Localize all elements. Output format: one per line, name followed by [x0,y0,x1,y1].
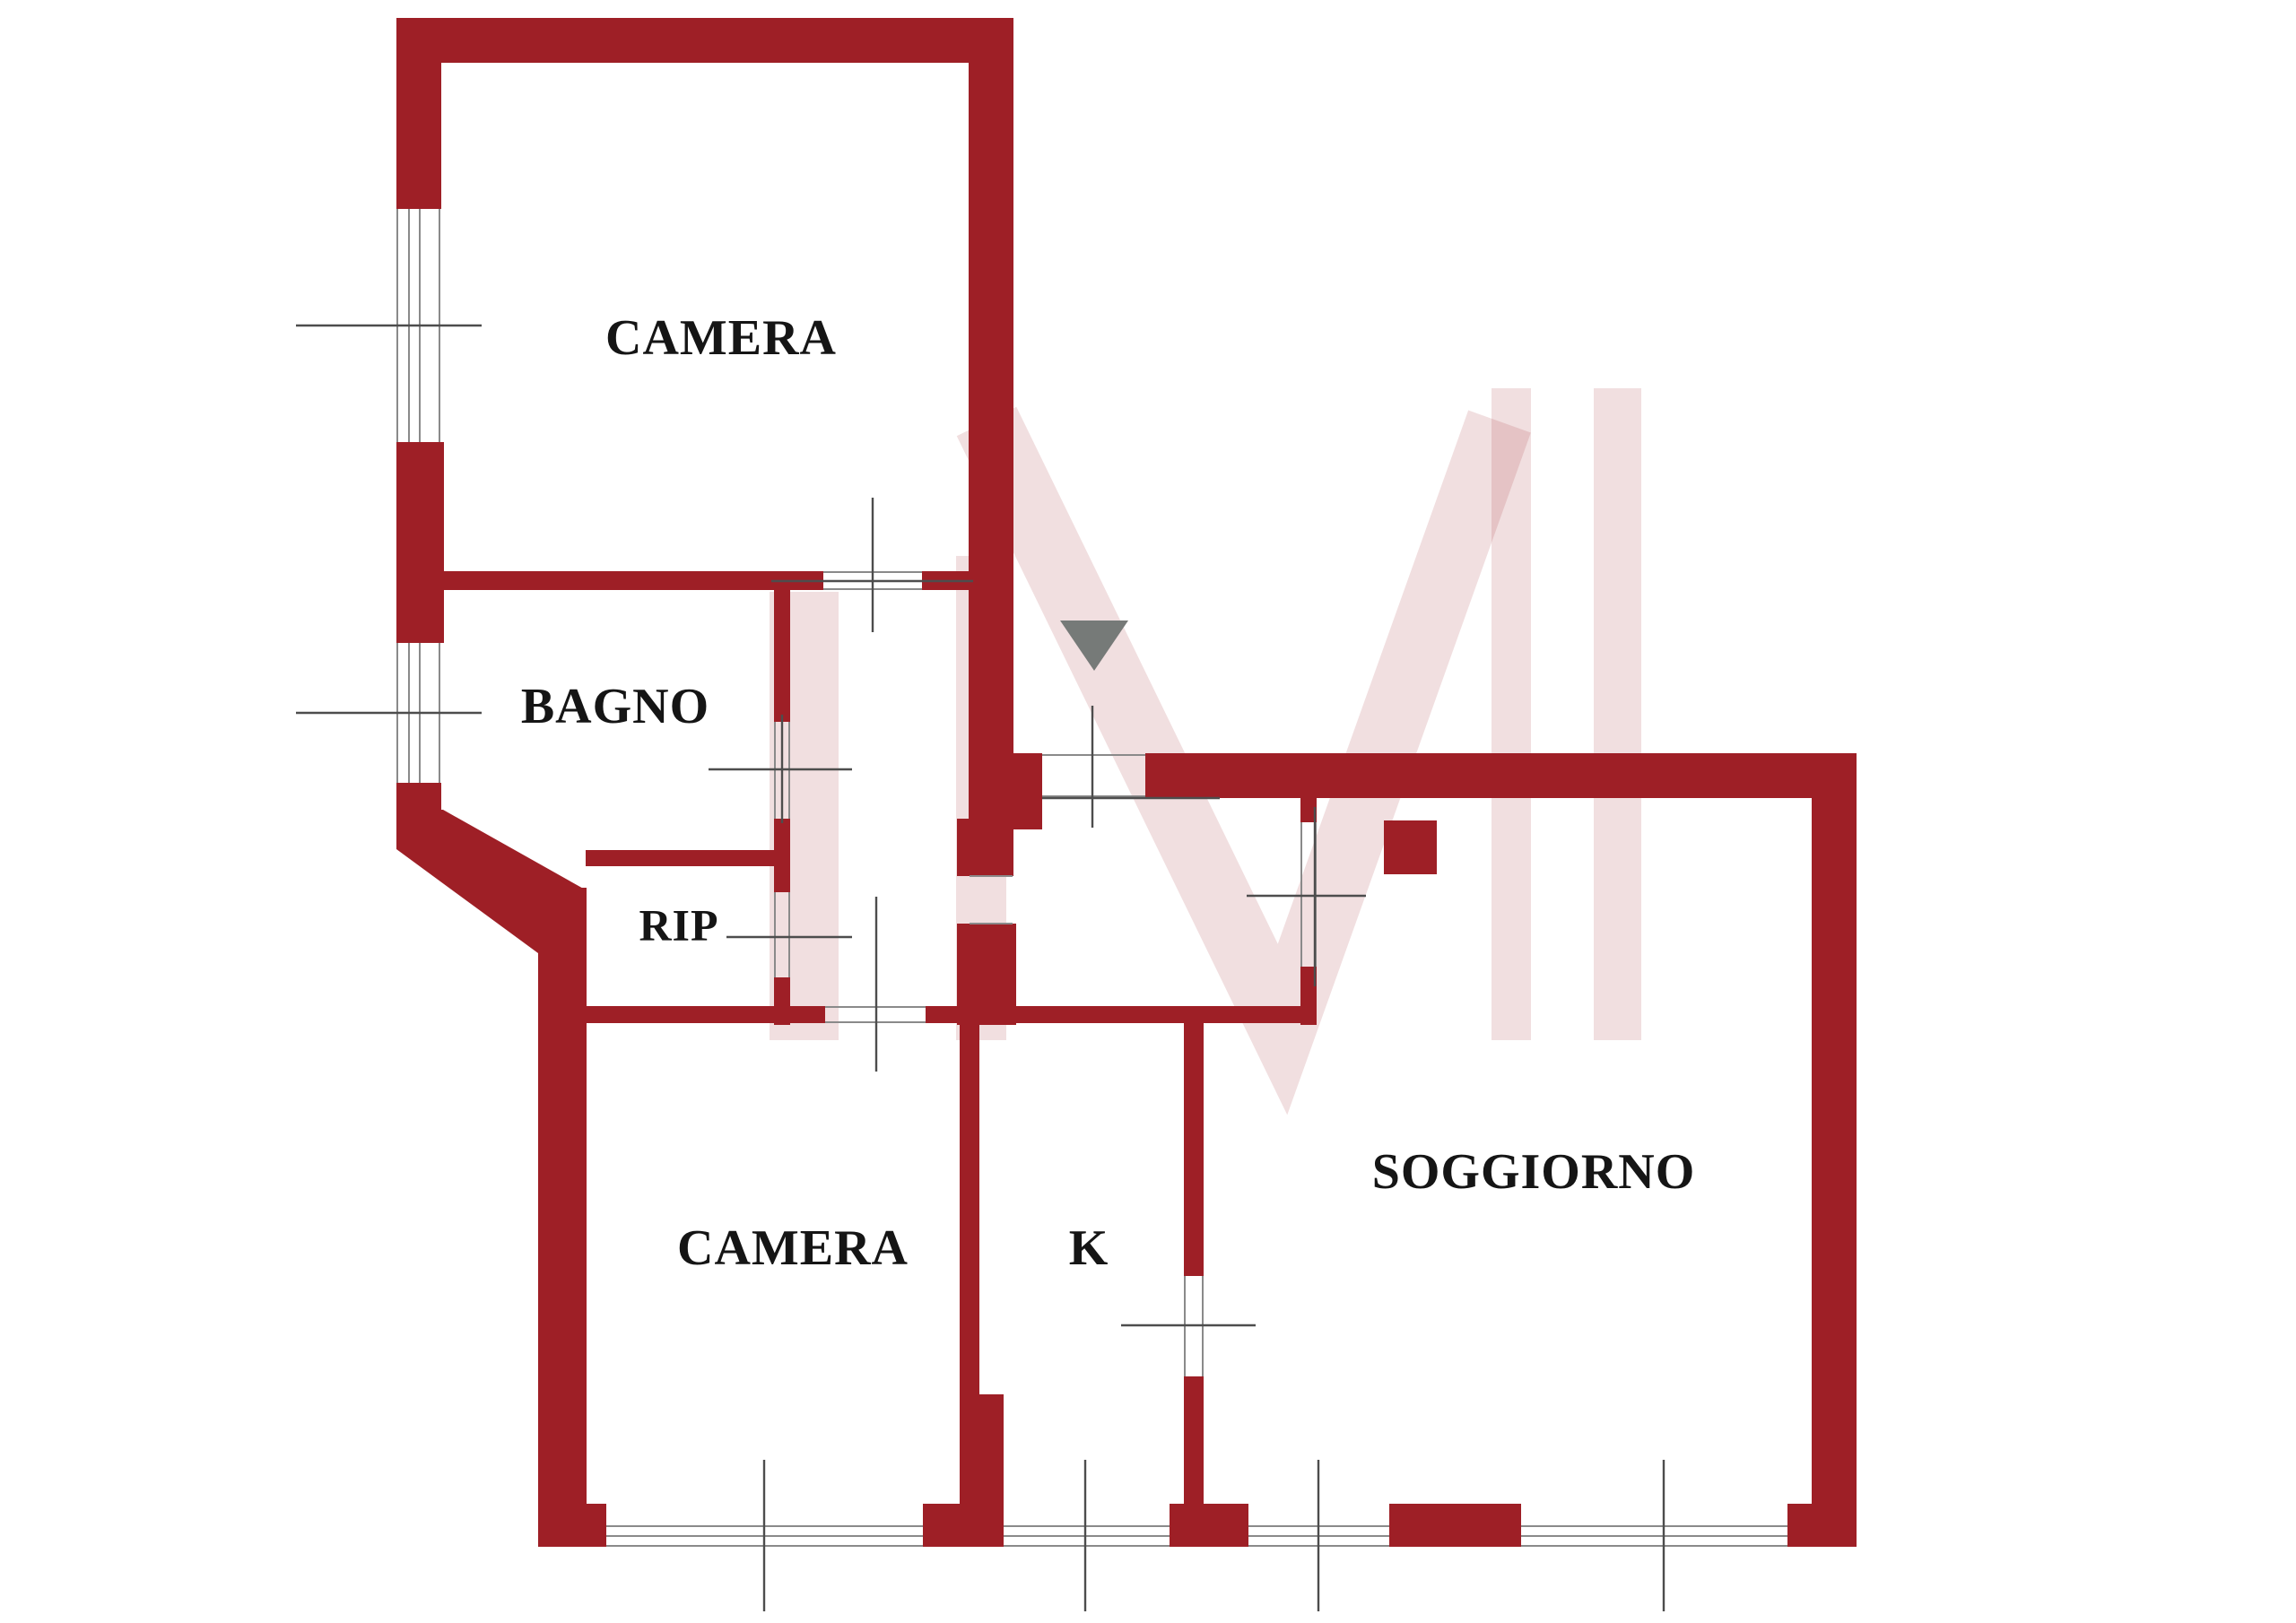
wall-bottom-foot-k-left [923,1504,1004,1547]
room-label-camera-bottom: CAMERA [677,1220,909,1276]
wall-bagno-diagonal [396,810,587,953]
wall-top-wall [396,18,1013,63]
floor-plan-drawing: CAMERA BAGNO RIP CAMERA K SOGGIORNO [0,0,2296,1623]
room-label-camera-top: CAMERA [605,310,837,366]
room-label-rip: RIP [639,899,718,950]
wall-entry-jamb [1013,753,1042,829]
watermark-bar [1594,388,1641,1040]
pillar [1384,820,1437,874]
wall-k-west-wall-step [979,1394,1004,1509]
wall-camera1-south-wall-left [441,571,823,590]
wall-left-wall-upper-pier [396,18,441,209]
wall-rip-north-wall [586,850,774,866]
wall-k-east-wall-lower [1184,1376,1204,1509]
wall-k-west-wall [960,1023,979,1509]
wall-east-wall-foot [1787,1504,1812,1547]
room-label-kitchen: K [1069,1220,1109,1276]
wall-bagno-east-wall-mid [774,819,790,892]
wall-k-east-wall-upper [1184,1015,1204,1276]
room-label-soggiorno: SOGGIORNO [1372,1144,1696,1200]
wall-hall-south-wall-left [586,1006,825,1023]
wall-central-wall [969,18,1013,876]
wall-camera2-west-wall [538,888,587,1509]
floor-plan-page: CAMERA BAGNO RIP CAMERA K SOGGIORNO [0,0,2296,1623]
wall-bottom-mid-block [1389,1504,1521,1547]
wall-bagno-east-wall-upper [774,590,790,722]
wall-central-wall-notch [957,819,969,876]
wall-east-wall [1812,753,1857,1547]
watermark-m-diagonals [987,421,1500,1029]
wall-bottom-foot-left [538,1504,606,1547]
wall-soggiorno-north-wall [1145,753,1857,798]
plan-geometry-layer [296,18,1857,1611]
wall-hall-south-wall-right [926,1006,1314,1023]
wall-bottom-foot-k-right [1170,1504,1248,1547]
room-label-bagno: BAGNO [521,679,709,734]
wall-left-wall-mid-pier [396,442,444,643]
